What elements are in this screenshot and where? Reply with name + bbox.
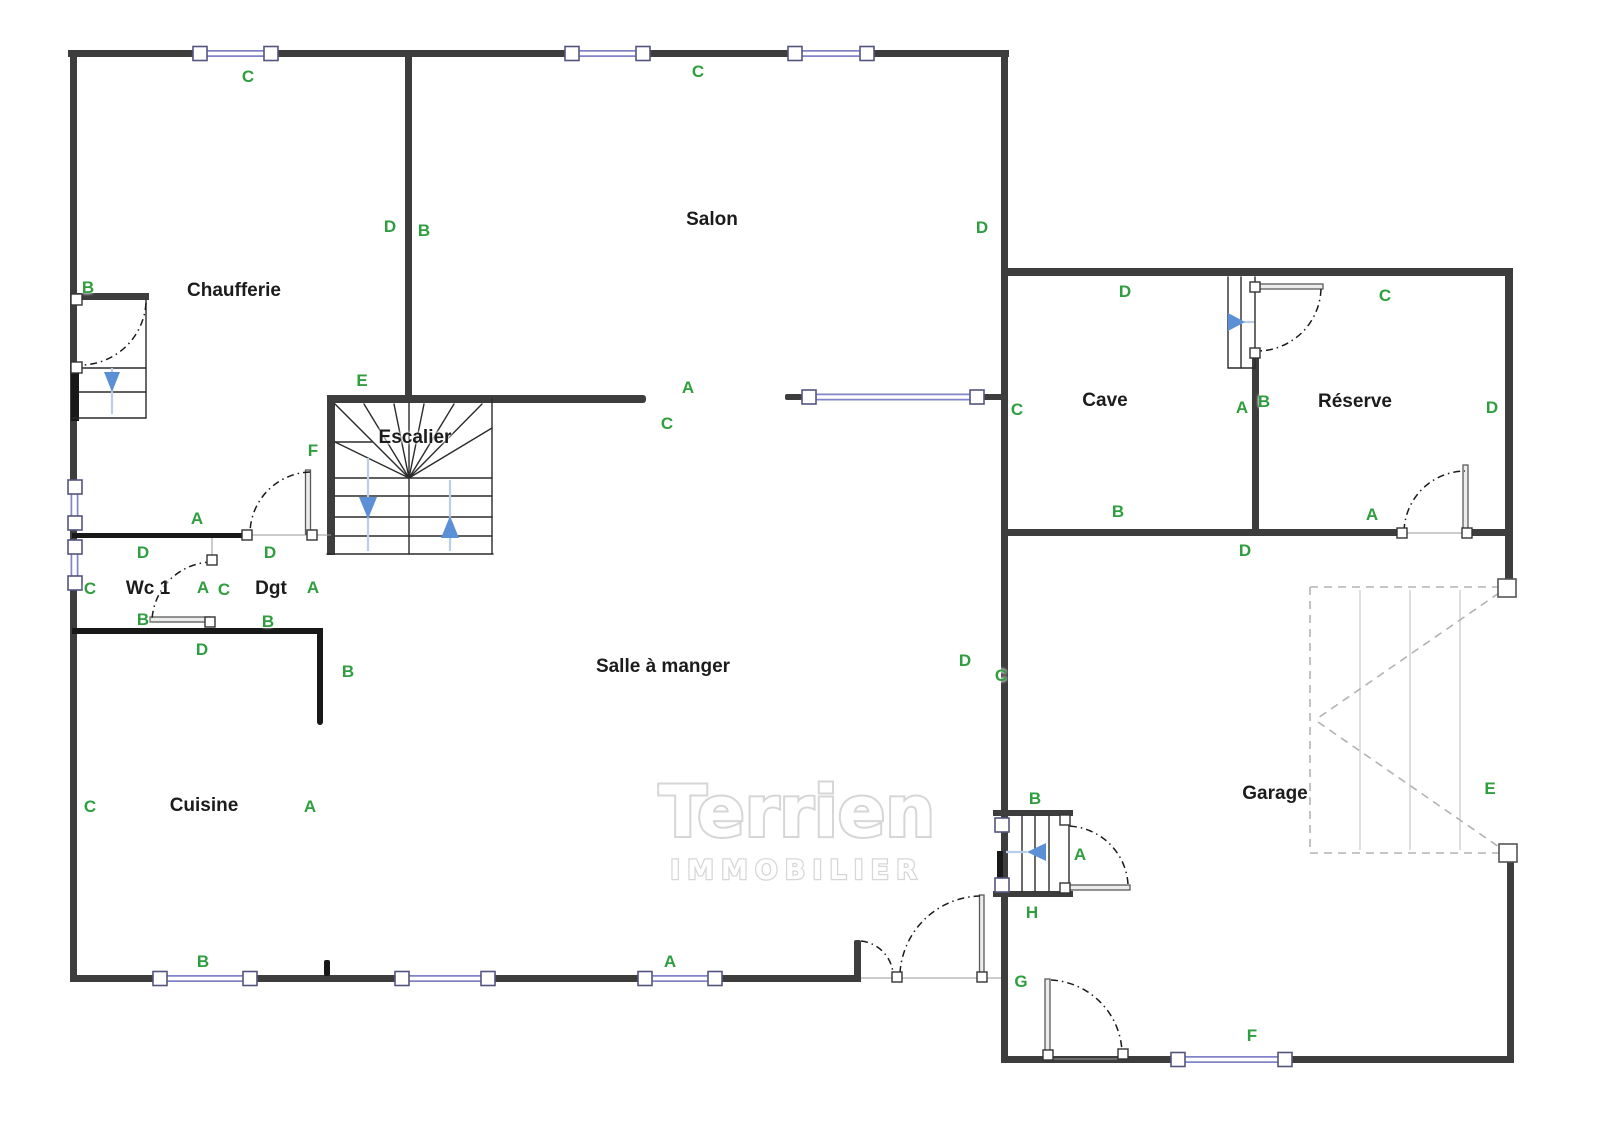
- room-label-dgt: Dgt: [255, 578, 287, 600]
- window: [66, 480, 83, 530]
- zone-label-d: D: [1486, 398, 1498, 418]
- zone-label-b: B: [1029, 789, 1041, 809]
- zone-label-c: C: [661, 414, 673, 434]
- window: [395, 971, 495, 987]
- zone-label-b: B: [197, 952, 209, 972]
- door-entry: [861, 895, 987, 982]
- staircase-annex: [1006, 816, 1069, 891]
- zone-label-b: B: [137, 610, 149, 630]
- door-annex-stair: [995, 815, 1130, 893]
- zone-label-c: C: [242, 67, 254, 87]
- room-label-wc-1: Wc 1: [126, 578, 170, 600]
- zone-label-a: A: [1236, 398, 1248, 418]
- zone-label-g: G: [1014, 972, 1027, 992]
- room-label-chaufferie: Chaufferie: [187, 280, 281, 302]
- zone-label-a: A: [304, 797, 316, 817]
- zone-label-d: D: [1239, 541, 1251, 561]
- floor-plan-drawing: Terrien IMMOBILIER: [0, 0, 1600, 1143]
- zone-label-b: B: [418, 221, 430, 241]
- floor-plan: Terrien IMMOBILIER ChaufferieSalonEscali…: [0, 0, 1600, 1143]
- zone-label-a: A: [1366, 505, 1378, 525]
- zone-label-b: B: [1112, 502, 1124, 522]
- zone-label-a: A: [664, 952, 676, 972]
- zone-label-a: A: [1074, 845, 1086, 865]
- room-label-salon: Salon: [686, 209, 738, 231]
- window: [565, 46, 650, 62]
- watermark-subtitle: IMMOBILIER: [670, 855, 924, 886]
- room-label-cuisine: Cuisine: [170, 795, 239, 817]
- zone-label-b: B: [1258, 392, 1270, 412]
- door-reserve: [1397, 465, 1472, 538]
- door-cave-reserve: [1250, 282, 1323, 358]
- zone-label-a: A: [682, 378, 694, 398]
- zone-label-d: D: [384, 217, 396, 237]
- zone-label-a: A: [197, 578, 209, 598]
- window: [153, 971, 257, 987]
- zone-label-c: C: [692, 62, 704, 82]
- window: [785, 390, 1002, 404]
- room-label-cave: Cave: [1082, 390, 1127, 412]
- zone-label-c: C: [84, 579, 96, 599]
- zone-label-a: A: [307, 578, 319, 598]
- watermark: Terrien IMMOBILIER: [659, 771, 935, 886]
- windows: [66, 46, 1292, 1068]
- door-chaufferie: [71, 294, 146, 373]
- door-annex-bottom: [1043, 979, 1128, 1060]
- zone-label-c: C: [1379, 286, 1391, 306]
- zone-label-b: B: [262, 612, 274, 632]
- zone-label-f: F: [1247, 1026, 1257, 1046]
- zone-label-a: A: [191, 509, 203, 529]
- outer-walls: [68, 50, 1514, 1063]
- window: [66, 540, 83, 590]
- room-label-garage: Garage: [1242, 783, 1307, 805]
- zone-label-h: H: [1026, 903, 1038, 923]
- zone-label-c: C: [84, 797, 96, 817]
- window: [788, 46, 874, 62]
- zone-label-f: F: [308, 441, 318, 461]
- zone-label-d: D: [137, 543, 149, 563]
- room-label-salle-à-manger: Salle à manger: [596, 656, 730, 678]
- zone-label-c: C: [1011, 400, 1023, 420]
- zone-label-d: D: [1119, 282, 1131, 302]
- zone-label-e: E: [356, 371, 367, 391]
- zone-label-b: B: [342, 662, 354, 682]
- window: [1171, 1052, 1292, 1068]
- zone-label-d: D: [959, 651, 971, 671]
- room-label-réserve: Réserve: [1318, 391, 1392, 413]
- garage-outline: [1310, 579, 1517, 862]
- staircase-chaufferie: [73, 300, 146, 418]
- door-dgt-escalier: [242, 470, 317, 540]
- zone-label-c: C: [995, 666, 1007, 686]
- window: [193, 46, 278, 62]
- watermark-brand: Terrien: [659, 771, 935, 853]
- zone-label-c: C: [218, 580, 230, 600]
- zone-label-d: D: [196, 640, 208, 660]
- room-label-escalier: Escalier: [379, 427, 452, 449]
- zone-label-e: E: [1484, 779, 1495, 799]
- zone-label-b: B: [82, 278, 94, 298]
- window: [638, 971, 722, 987]
- zone-label-d: D: [976, 218, 988, 238]
- zone-label-d: D: [264, 543, 276, 563]
- staircase-main: [327, 399, 493, 554]
